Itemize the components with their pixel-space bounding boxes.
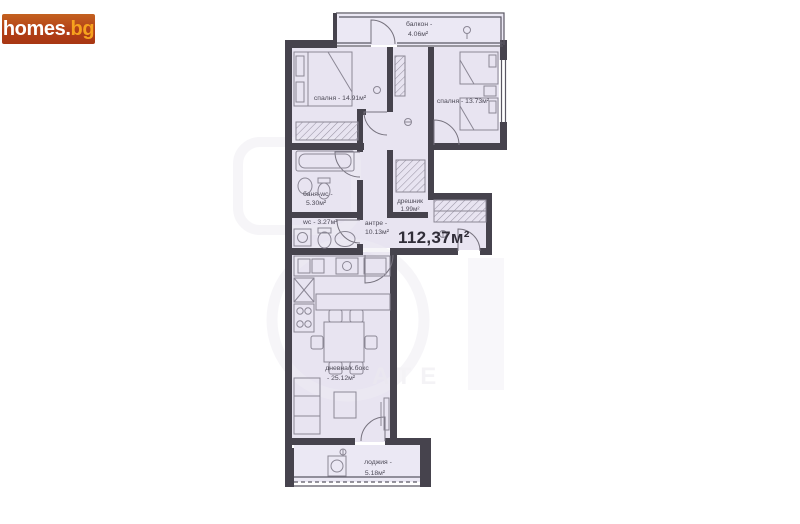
- room-area-closet: 1.99м²: [401, 206, 420, 213]
- room-area-loggia: 5.18м²: [365, 470, 386, 477]
- radiator-icon: [395, 56, 405, 96]
- room-area-living: - 25.12м²: [327, 375, 356, 382]
- hall-wardrobe-icon: [434, 200, 486, 222]
- closet-wardrobe-icon: [396, 160, 425, 192]
- room-label-hallway: антре -: [365, 220, 387, 227]
- room-label-balcony: балкон -: [406, 20, 432, 28]
- room-label-loggia: лоджия -: [364, 459, 392, 466]
- room-label-bedroom-right: спалня - 13.73м²: [437, 98, 490, 105]
- room-label-bathroom: баня-wc -: [303, 190, 333, 198]
- room-label-wc: wc - 3.27м²: [302, 219, 338, 226]
- wardrobe-icon: [296, 122, 358, 140]
- room-label-living: дневна/к.бокс: [325, 364, 369, 372]
- room-label-closet: дрешник: [397, 198, 423, 205]
- room-area-hallway: 10.13м²: [365, 229, 390, 236]
- screenshot-root: homes.bg ATE: [0, 0, 800, 524]
- floorplan-image: ATE: [0, 0, 800, 524]
- total-area-label: 112,37м²: [398, 228, 470, 247]
- room-area-balcony: 4.06м²: [408, 31, 429, 38]
- room-label-bedroom-left: спалня - 14.91м²: [314, 95, 367, 102]
- bedroom-window: [499, 60, 508, 122]
- room-area-bathroom: 5.30м²: [306, 200, 327, 207]
- watermark-text: ATE: [372, 363, 445, 390]
